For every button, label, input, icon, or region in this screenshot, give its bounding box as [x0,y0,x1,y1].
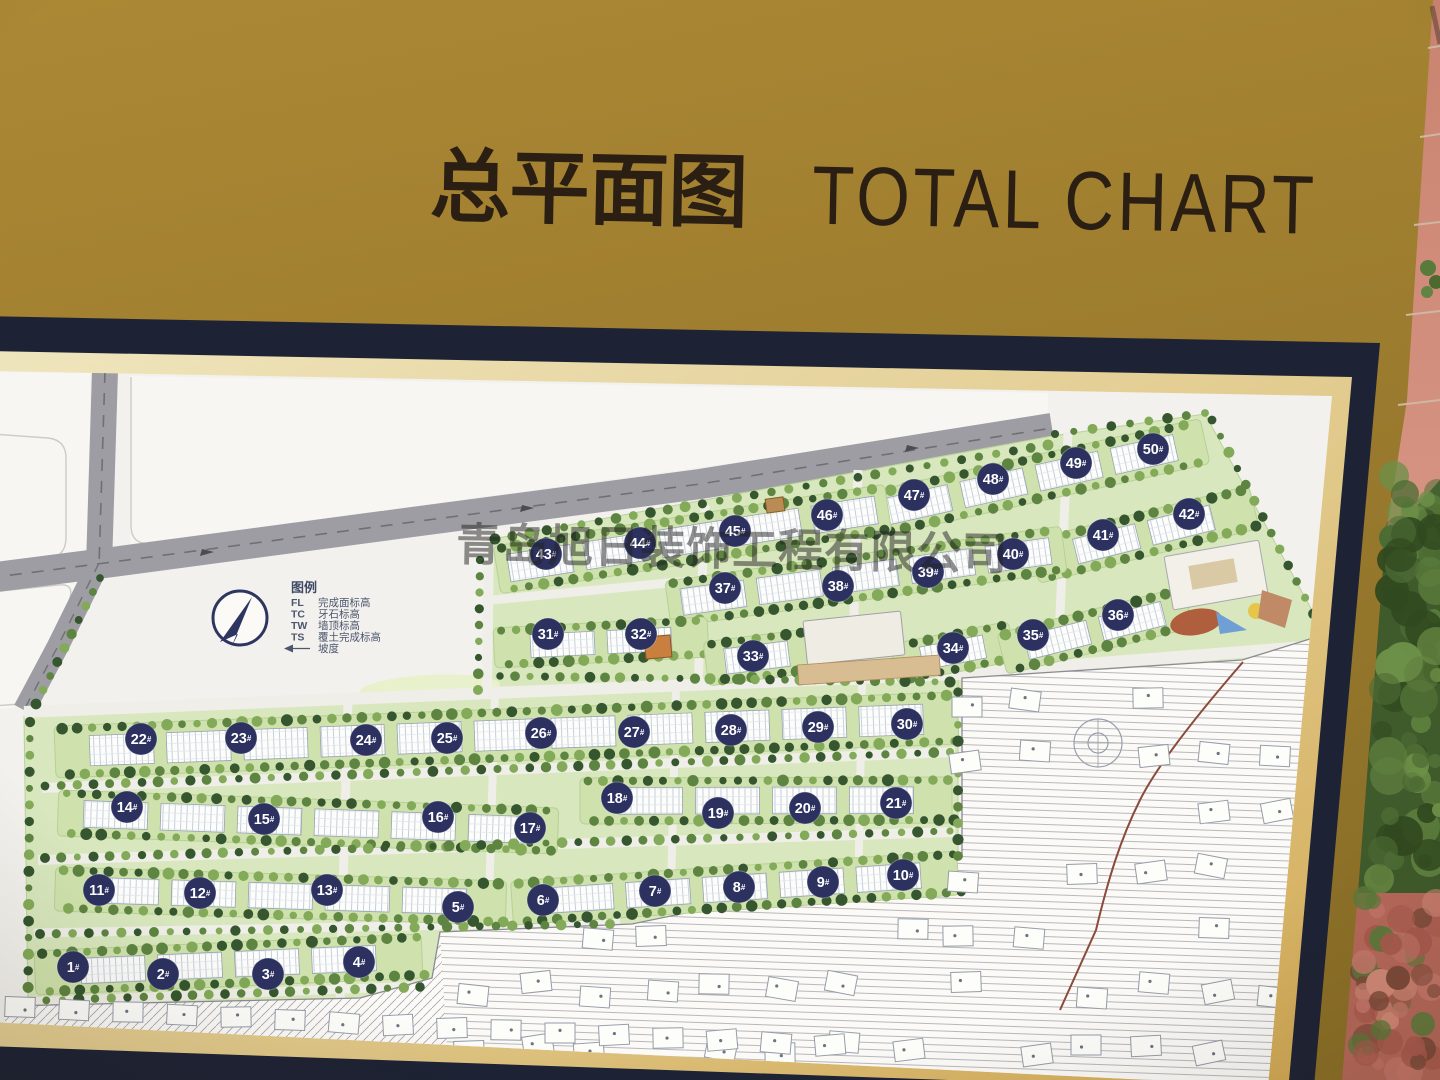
village-house [636,925,667,946]
village-house [1135,860,1167,884]
building-marker: 18# [601,782,633,814]
village-house [1076,987,1107,1009]
village-house [814,1034,846,1057]
village-house [1259,745,1290,767]
village-house [221,1007,251,1028]
building-marker: 20# [789,792,821,824]
building-marker: 21# [880,787,912,819]
building-marker: 27# [618,716,650,748]
village-house [328,1012,360,1035]
legend-item-key: TW [291,620,307,632]
building-marker: 23# [225,722,257,754]
building-marker: 16# [422,801,454,833]
building-marker: 6# [527,884,559,916]
building-marker: 48# [977,463,1009,495]
village-house [1071,1035,1101,1055]
title-english: TOTAL CHART [811,149,1318,252]
site-plan-board: 总平面图 TOTAL CHART [0,0,1440,1080]
village-house [520,970,552,993]
village-house [647,980,678,1002]
building-marker: 30# [891,708,923,740]
village-house [893,1038,925,1062]
village-house [582,928,614,951]
building-marker: 34# [937,632,969,664]
building-marker: 2# [147,958,179,990]
village-house [1138,744,1170,767]
village-house [1198,741,1230,764]
building-marker: 37# [709,572,741,604]
building-marker: 12# [184,877,216,909]
building-marker: 24# [350,724,382,756]
village-house [1199,917,1230,938]
building-marker: 28# [715,714,747,746]
building-marker: 47# [898,479,930,511]
village-house [545,1023,575,1043]
village-house [1009,688,1041,712]
building-marker: 50# [1137,433,1169,465]
building-marker: 17# [514,812,546,844]
village-roundabout [1074,719,1122,767]
building-marker: 26# [525,717,557,749]
legend-item-label: 牙石标高 [318,608,360,621]
photo-watermark: 青岛旭日装饰工程有限公司 [456,519,1009,580]
village-house [1019,740,1050,762]
village-house [166,1004,197,1026]
site-plan-map: 图例 FL完成面标高TC牙石标高TW墙顶标高TS覆土完成标高坡度 1#2#3#4… [0,371,1330,1080]
building-marker: 33# [737,640,769,672]
village-house [1067,863,1098,884]
building-marker: 5# [442,891,474,923]
building-marker: 8# [723,871,755,903]
legend-item-key: FL [291,597,304,609]
village-house [699,974,729,995]
village-house [1013,927,1045,950]
building-marker: 49# [1060,447,1092,479]
legend-item-label: 坡度 [318,642,339,655]
village-house [457,983,489,1006]
building-marker: 7# [639,875,671,907]
village-house [58,999,89,1021]
building-marker: 3# [252,958,284,990]
legend-heading: 图例 [291,580,317,595]
village-house [947,871,978,893]
building-marker: 1# [57,951,89,983]
building-marker: 25# [431,722,463,754]
village-house [5,996,36,1017]
village-house [113,1002,143,1023]
village-house [491,1020,521,1041]
building-marker: 19# [702,797,734,829]
legend-item-key: TS [291,632,304,644]
village-house [943,926,973,947]
signboard-photo: 总平面图 TOTAL CHART [0,0,1440,1080]
building-marker: 14# [111,791,143,823]
legend-item-label: 完成面标高 [318,596,371,609]
building-marker: 15# [248,803,280,835]
village-house [951,971,982,992]
building-marker: 41# [1087,519,1119,551]
building-marker: 11# [83,874,115,906]
village-house [275,1009,306,1030]
village-house [1021,1043,1053,1067]
village-house [1133,688,1163,709]
building-marker: 10# [887,859,919,891]
building-marker: 13# [311,874,343,906]
legend-item-label: 覆土完成标高 [318,631,381,644]
village-house [706,1029,738,1052]
village-house [1138,972,1170,995]
building-marker: 42# [1173,498,1205,530]
village-house [1198,800,1230,824]
building-marker: 32# [625,618,657,650]
building-marker: 29# [802,711,834,743]
village-house [898,919,928,940]
village-house [382,1014,413,1036]
building-marker: 35# [1017,619,1049,651]
village-house [1130,1035,1161,1057]
village-house [437,1017,468,1038]
village-house [952,697,982,717]
building-marker: 31# [532,618,564,650]
village-house [653,1028,683,1049]
building-marker: 22# [125,723,157,755]
legend-item-key: TC [291,609,305,621]
village-house [579,986,610,1008]
legend-item-label: 墙顶标高 [318,619,360,632]
village-house [760,1032,792,1055]
building-marker: 9# [807,866,839,898]
building-marker: 36# [1102,599,1134,631]
building-marker: 4# [343,946,375,978]
title-chinese: 总平面图 [429,142,749,237]
village-house [598,1024,629,1046]
village-house [949,750,981,774]
